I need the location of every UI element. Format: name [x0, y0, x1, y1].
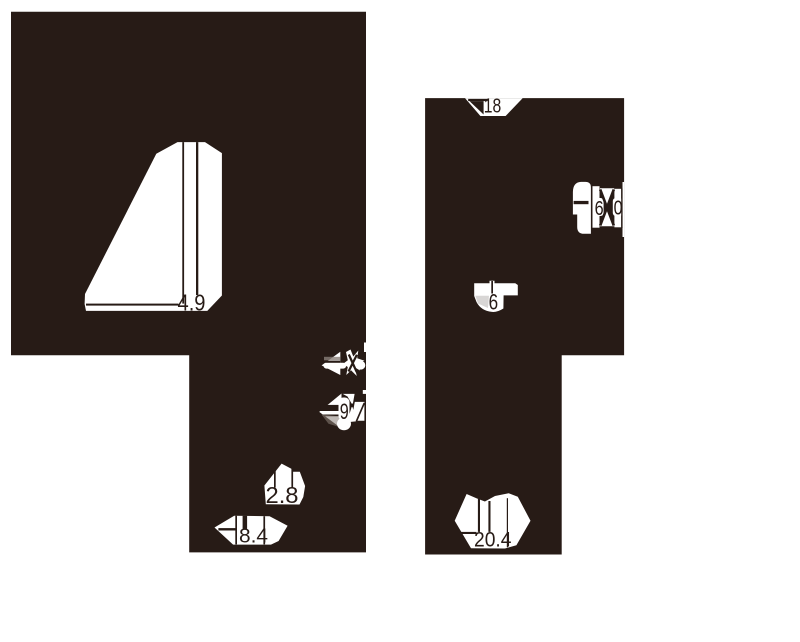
svg-text:8.4: 8.4	[239, 526, 268, 548]
svg-text:6: 6	[595, 198, 604, 220]
svg-text:9: 9	[340, 399, 349, 424]
svg-text:2.8: 2.8	[266, 482, 299, 508]
svg-text:20.4: 20.4	[474, 529, 512, 552]
svg-text:18: 18	[484, 96, 502, 118]
svg-text:4.9: 4.9	[178, 290, 206, 316]
svg-text:6: 6	[489, 290, 499, 315]
svg-text:0: 0	[614, 198, 623, 220]
